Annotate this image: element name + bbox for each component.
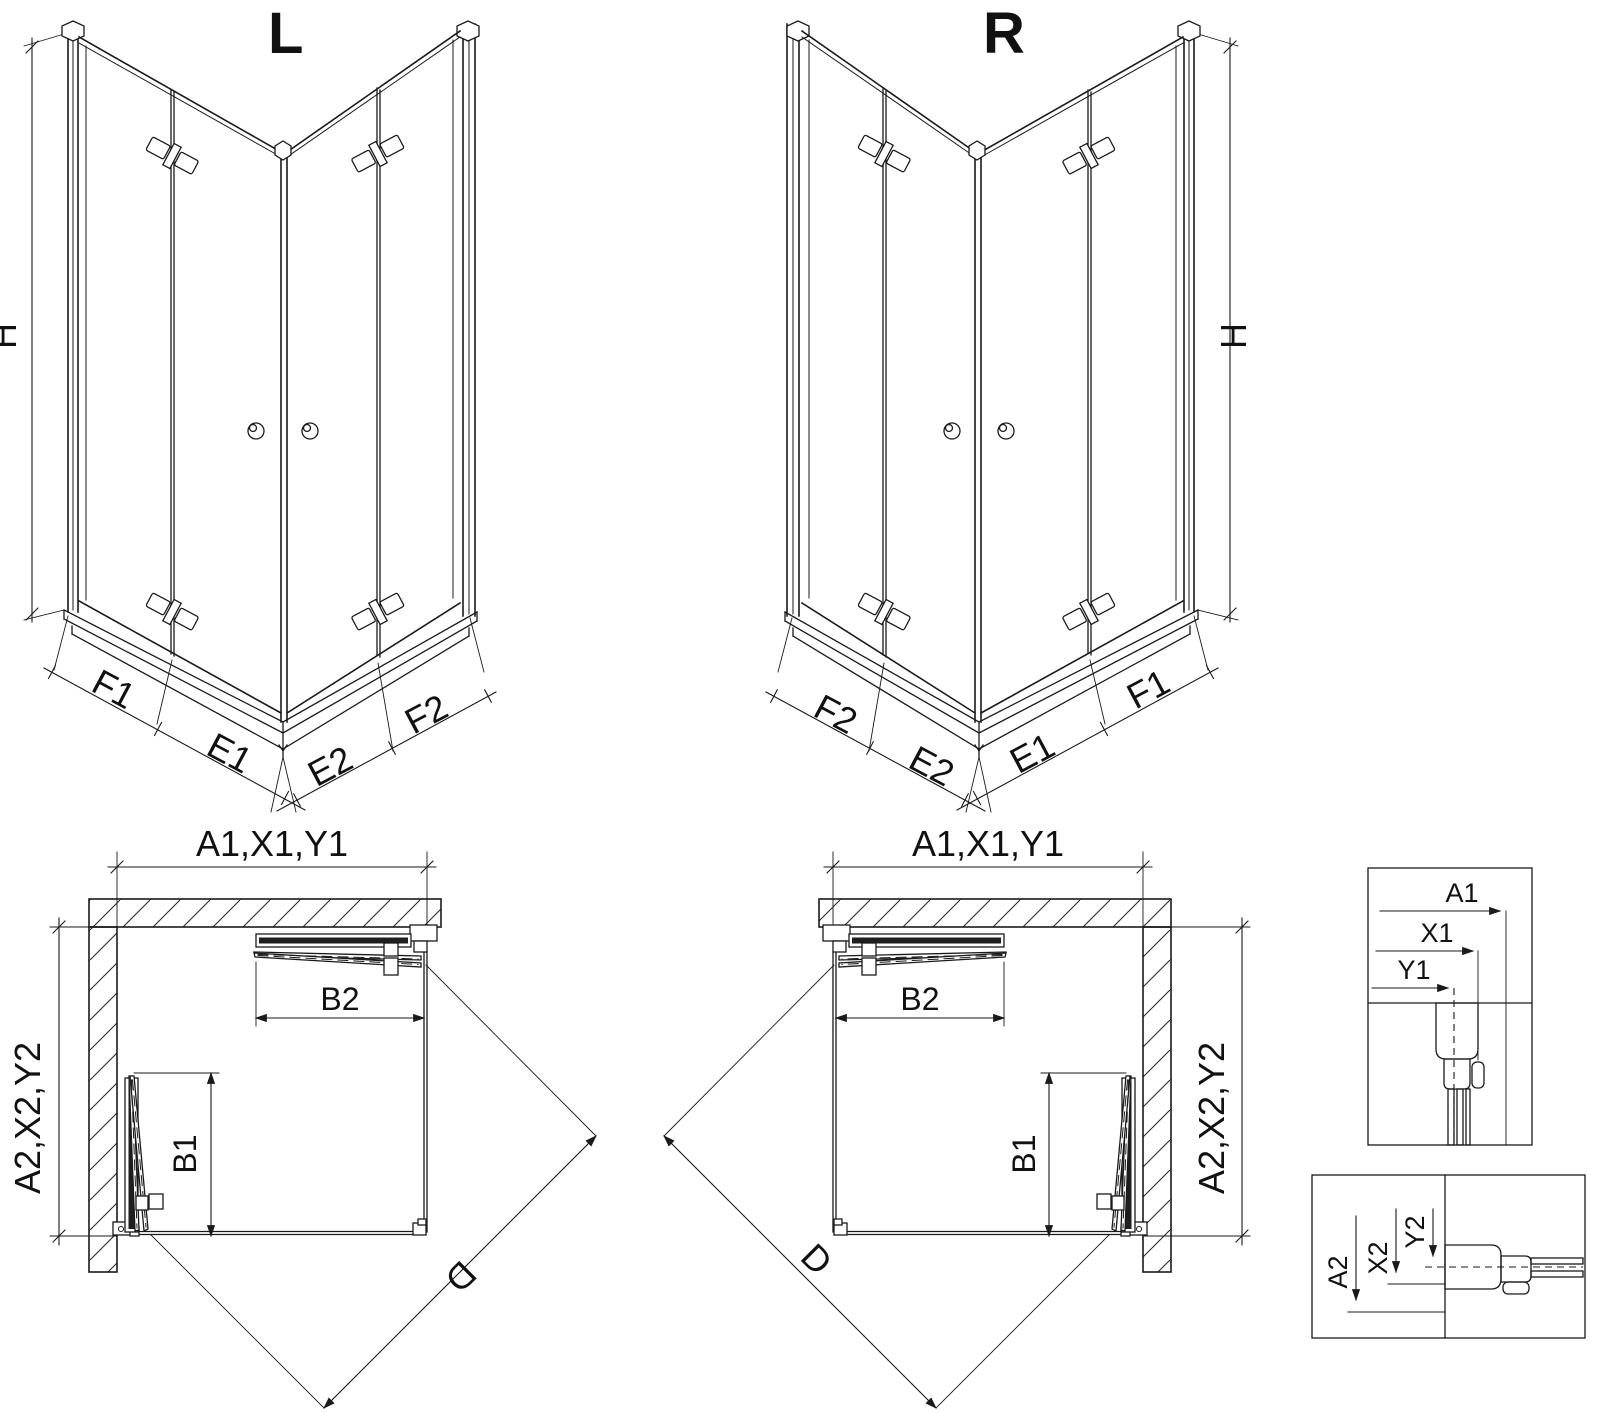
dim-label-D-left-plan: D [437,1253,484,1300]
wall-side-left-plan [89,927,117,1272]
dim-label-depth-left-plan: A2,X2,Y2 [7,1042,48,1194]
detail-label-Y1: Y1 [1397,955,1430,985]
base-dimensions-right-view: F2 E2 E1 F1 [766,616,1218,812]
wall-top-right-plan [819,899,1171,927]
dim-label-E1-left-view: E1 [201,725,259,782]
dim-label-E2-left-view: E2 [301,738,359,795]
technical-drawing: L H [0,0,1600,1413]
dim-label-width-left-plan: A1,X1,Y1 [196,823,348,864]
dimension-A1-right-plan: A1,X1,Y1 [824,823,1152,950]
dim-label-B1-right-plan: B1 [1006,1134,1042,1173]
dimension-H-right: H [1198,34,1254,622]
perspective-view-left: L H [0,1,496,812]
bifold-door-side-left-plan [125,1076,163,1232]
plan-view-left: A1,X1,Y1 B [7,823,596,1408]
detail-box-bottom: A2 X2 Y2 [1312,1175,1585,1338]
dimension-B2-left-plan: B2 [256,962,424,1026]
door-knobs-left-view [248,423,318,439]
bifold-door-top-left-plan [254,934,421,975]
wall-profile-section-top [1436,1003,1484,1145]
wall-side-right-plan [1143,927,1171,1272]
dim-label-width-right-plan: A1,X1,Y1 [912,823,1064,864]
dim-label-F2-left-view: F2 [398,686,454,742]
dim-label-B1-left-plan: B1 [167,1134,203,1173]
bifold-door-top-right-plan [839,934,1006,975]
enclosure-structure-left [62,21,479,757]
enclosure-structure-right [785,21,1200,757]
base-dimensions-left-view: F1 E1 E2 F2 [44,616,496,812]
view-title-left: L [268,1,303,66]
dim-label-H-left: H [0,323,24,349]
dim-label-D-right-plan: D [793,1235,840,1282]
bifold-door-side-right-plan [1097,1076,1135,1232]
dim-label-B2-right-plan: B2 [900,981,939,1017]
drawing-sheet: L H [0,0,1600,1413]
dim-label-E2-right-view: E2 [903,738,961,795]
hinges-right-view [855,131,1117,635]
dimension-B2-right-plan: B2 [836,962,1004,1026]
dimension-D-right-plan: D [664,965,1109,1408]
dimension-H-left: H [0,34,64,622]
view-title-right: R [983,1,1025,66]
detail-label-X2: X2 [1363,1241,1393,1274]
detail-label-Y2: Y2 [1400,1215,1430,1248]
wall-profile-section-bottom [1445,1245,1583,1294]
perspective-view-right: R H [766,1,1254,812]
door-knobs-right-view [944,423,1014,439]
dim-label-H-right: H [1213,323,1254,349]
dimension-D-left-plan: D [151,965,596,1408]
dim-label-E1-right-view: E1 [1003,725,1061,782]
dim-label-depth-right-plan: A2,X2,Y2 [1191,1042,1232,1194]
dim-label-B2-left-plan: B2 [320,981,359,1017]
detail-box-top: A1 X1 Y1 [1368,868,1532,1145]
detail-label-X1: X1 [1420,918,1453,948]
dimension-B1-right-plan: B1 [1006,1073,1126,1236]
detail-label-A1: A1 [1445,878,1478,908]
dim-label-F1-right-view: F1 [1120,661,1176,717]
plan-view-right: A1,X1,Y1 B [664,823,1250,1408]
dim-label-F1-left-view: F1 [86,661,142,717]
hinges-left-view [143,131,406,635]
wall-top-left-plan [89,899,441,927]
detail-label-A2: A2 [1323,1255,1353,1288]
dim-label-F2-right-view: F2 [808,686,864,742]
dimension-A1-left-plan: A1,X1,Y1 [108,823,436,950]
